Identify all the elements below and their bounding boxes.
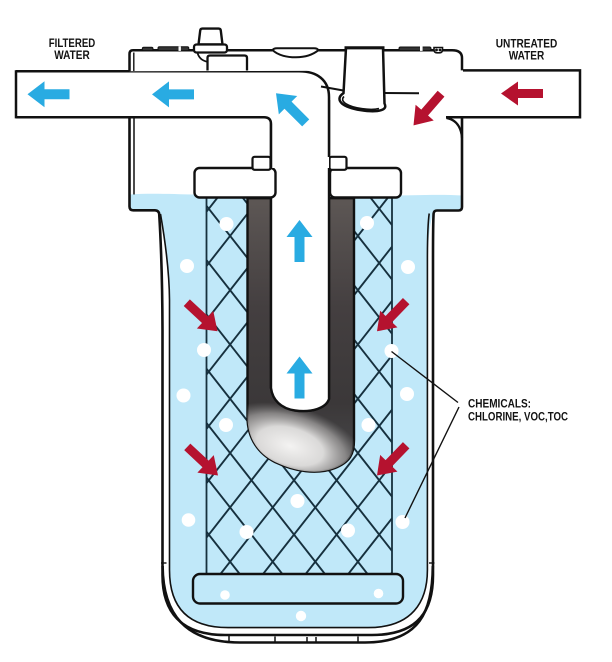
svg-text:CHEMICALS:: CHEMICALS: (468, 398, 531, 411)
svg-text:CHLORINE, VOC,TOC: CHLORINE, VOC,TOC (468, 411, 569, 424)
svg-text:WATER: WATER (509, 50, 545, 63)
svg-text:WATER: WATER (54, 49, 90, 62)
